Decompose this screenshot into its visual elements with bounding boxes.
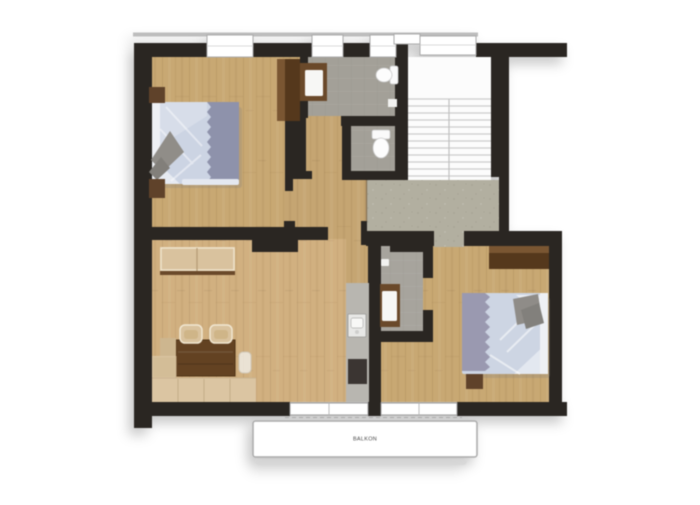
svg-text:BALKON: BALKON (353, 437, 377, 443)
